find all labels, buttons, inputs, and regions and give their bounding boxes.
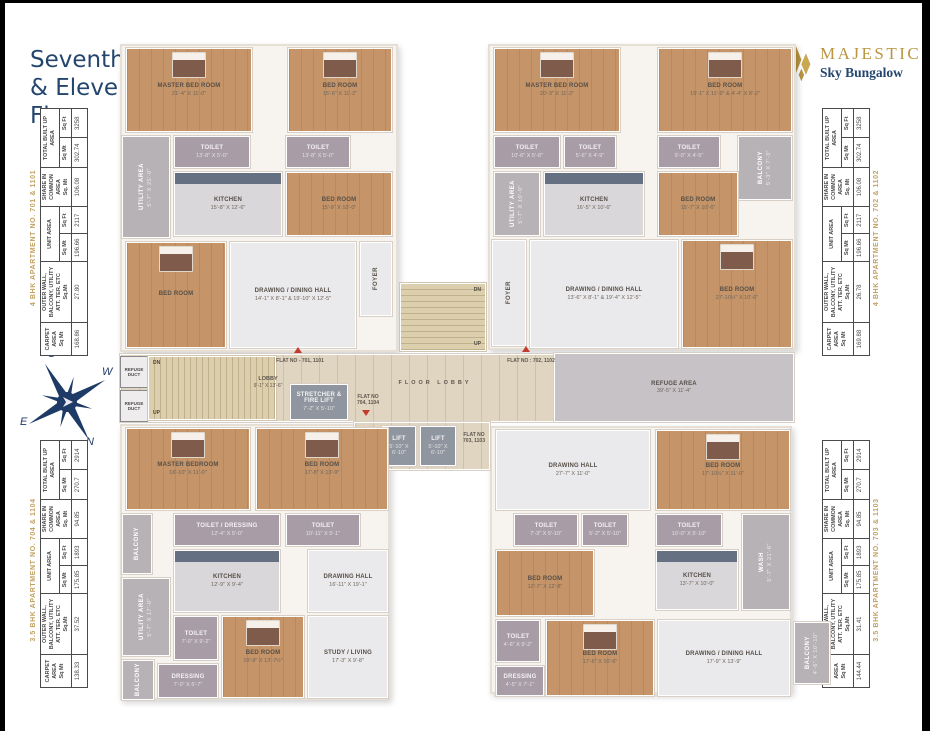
room-balcony: BALCONY [122,660,154,700]
sqft-subheader: Sq Ft [60,109,71,139]
room-bedroom: BED ROOM [126,242,226,348]
room-toilet: TOILET13'-8" X 5'-0" [174,136,250,168]
flat-704-label: FLAT NO 704, 1104 [346,394,390,407]
room-utility-area: UTILITY AREA5'-7" X 25'-0" [122,136,170,238]
sqmt-subheader: Sq Mt [60,138,71,168]
left-border-bar [0,0,5,731]
apartment-704-label: 3.5 BHK APARTMENT NO. 704 & 1104 [30,452,37,688]
room-bedroom: BED ROOM15'-7" X 10'-6" [658,172,738,236]
logo-subtitle: Sky Bungalow [820,65,921,81]
unit-sqft-value: 1893 [71,539,87,567]
room-master-bedroom: MASTER BED ROOM21'-4" X 11'-0" [126,48,252,132]
share-value: 106.08 [853,168,869,207]
share-value: 106.08 [71,168,87,207]
stairs-up-label: UP [474,341,481,347]
room-toilet: TOILET10'-6" X 5'-8" [494,136,560,168]
room-master-bedroom: MASTER BEDROOM16'-10" X 11'-0" [126,428,250,510]
unit-sqmt-value: 175.85 [853,566,869,594]
share-common-header: SHARE IN COMMON AREA Sq. Mt [823,168,854,207]
room-kitchen: KITCHEN15'-8" X 12'-6" [174,172,282,236]
floor-lobby-label: FLOOR LOBBY [380,380,490,387]
room-foyer: FOYER [360,242,392,316]
right-border-bar [922,0,930,731]
logo-name: MAJESTIC [820,44,921,64]
total-sqft-value: 2914 [853,441,869,471]
total-sqmt-value: 270.7 [71,470,87,500]
staircase-central: DN UP [400,283,486,351]
room-dressing: DRESSING7'-0" X 6'-7" [158,664,218,698]
room-bedroom: BED ROOM15'-6" X 11'-2" [288,48,392,132]
room-foyer: FOYER [492,240,526,346]
unit-area-header: UNIT AREA [41,539,60,594]
share-common-header: SHARE IN COMMON AREA Sq. Mt [41,168,72,207]
room-bedroom: BED ROOM15'-9" X 10'-0" [286,172,392,236]
stairs-up-label: UP [153,410,160,416]
total-sqmt-value: 270.7 [853,470,869,500]
bed-icon [708,52,742,78]
unit-area-header: UNIT AREA [41,207,60,262]
outer-wall-header: OUTER WALL, BALCONY, UTILITY ATT. TER. E… [823,262,854,323]
room-toilet: TOILET13'-8" X 5'-0" [286,136,350,168]
carpet-value: 168.86 [71,323,87,356]
lobby-label: LOBBY 9'-1" X 13'-6" [242,376,294,390]
outer-wall-header: OUTER WALL, BALCONY, UTILITY ATT. TER. E… [41,262,72,323]
room-drawing-dining-hall: DRAWING / DINING HALL17'-9" X 13'-9" [658,620,790,696]
carpet-header: CARPET AREA Sq Mt [41,655,72,688]
bed-icon [159,246,193,272]
area-table: CARPET AREA Sq Mt OUTER WALL, BALCONY, U… [40,440,88,688]
outer-value: 31.41 [853,594,869,655]
floor-plan-page: Seventh & Eleventh Floor MAJESTIC Sky Bu… [0,0,930,731]
unit-area-header: UNIT AREA [823,539,842,594]
room-balcony: BALCONY5'-3" X 7'-3" [738,136,792,200]
share-value: 94.85 [853,500,869,539]
room-toilet: TOILET7'-0" X 9'-2" [174,616,218,660]
room-utility-area: UTILITY AREA5'-7" X 10'-9" [494,172,540,236]
stairs-dn-label: DN [474,287,481,293]
room-kitchen: KITCHEN13'-7" X 10'-0" [656,550,738,610]
unit-sqmt-value: 196.66 [71,234,87,262]
room-bedroom: BED ROOM17'-8" X 13'-9" [256,428,388,510]
total-builtup-header: TOTAL BUILT UP AREA [41,441,60,500]
sqft-subheader: Sq Ft [842,539,853,567]
total-sqft-value: 3258 [71,109,87,139]
bed-icon [246,620,280,646]
area-table: CARPET AREA Sq Mt OUTER WALL, BALCONY, U… [822,108,870,356]
sqft-subheader: Sq Ft [60,441,71,471]
sqmt-subheader: Sq Mt [842,566,853,594]
room-kitchen: KITCHEN16'-5" X 10'-6" [544,172,644,236]
floor-plan: MASTER BED ROOM21'-4" X 11'-0" BED ROOM1… [118,42,818,706]
area-table-702: CARPET AREA Sq Mt OUTER WALL, BALCONY, U… [822,120,880,356]
room-drawing-dining-hall: DRAWING / DINING HALL14'-1" X 8'-1" & 19… [230,242,356,348]
flat-702-label: FLAT NO : 702, 1102 [496,358,566,364]
room-bedroom: BED ROOM17'-6" X 10'-6" [546,620,654,696]
sqmt-subheader: Sq Mt [60,470,71,500]
area-table-701: 4 BHK APARTMENT NO. 701 & 1101 CARPET AR… [30,120,88,356]
sqmt-subheader: Sq Mt [60,234,71,262]
room-utility-area: UTILITY AREA5'-7" X 17'-0" [122,578,170,656]
carpet-header: CARPET AREA Sq Mt [41,323,72,356]
bed-icon [305,432,339,458]
logo-text: MAJESTIC Sky Bungalow [820,44,921,81]
total-sqmt-value: 302.74 [853,138,869,168]
room-toilet-dressing: TOILET / DRESSING12'-4" X 5'-0" [174,514,280,546]
room-wash: WASH5'-7" X 21'-6" [742,514,790,610]
room-toilet: TOILET10'-11" X 5'-1" [286,514,360,546]
bed-icon [540,52,574,78]
bed-icon [171,432,205,458]
apartment-703-label: 3.5 BHK APARTMENT NO. 703 & 1103 [873,452,880,688]
bed-icon [172,52,206,78]
room-toilet: TOILET10'-0" X 5'-10" [656,514,722,546]
entrance-marker-702 [522,346,530,352]
carpet-value: 144.44 [853,655,869,688]
sqft-subheader: Sq Ft [60,539,71,567]
top-border-bar [0,0,930,3]
room-drawing-dining-hall: DRAWING / DINING HALL13'-6" X 8'-1" & 19… [530,240,678,348]
room-bedroom: BED ROOM15'-1" X 11'-9" & 4'-4" X 8'-2" [658,48,792,132]
carpet-value: 138.33 [71,655,87,688]
sqft-subheader: Sq Ft [842,207,853,235]
room-bedroom: BED ROOM17'-10½" X 11'-0" [656,430,790,510]
apartment-701-label: 4 BHK APARTMENT NO. 701 & 1101 [30,120,37,356]
refuge-area: REFUGE AREA39'-5" X 11'-4" [554,353,794,422]
carpet-value: 169.88 [853,323,869,356]
unit-area-header: UNIT AREA [823,207,842,262]
room-toilet: TOILET5'-6" X 4'-9" [564,136,616,168]
bed-icon [323,52,357,78]
total-sqft-value: 2914 [71,441,87,471]
area-table-704: 3.5 BHK APARTMENT NO. 704 & 1104 CARPET … [30,452,88,688]
total-builtup-header: TOTAL BUILT UP AREA [41,109,60,168]
unit-sqmt-value: 175.85 [71,566,87,594]
area-table: CARPET AREA Sq Mt OUTER WALL, BALCONY, U… [40,108,88,356]
apartment-702-label: 4 BHK APARTMENT NO. 702 & 1102 [873,120,880,356]
room-drawing-hall: DRAWING HALL16'-11" X 19'-1" [308,550,388,612]
refuge-duct: REFUGE DUCT [120,390,148,422]
sqmt-subheader: Sq Mt [842,138,853,168]
outer-value: 26.78 [853,262,869,323]
room-drawing-hall: DRAWING HALL27'-7" X 11'-0" [496,430,650,510]
unit-sqmt-value: 196.66 [853,234,869,262]
room-toilet: TOILET4'-6" X 9'-2" [496,620,540,662]
sqft-subheader: Sq Ft [842,109,853,139]
sqft-subheader: Sq Ft [842,441,853,471]
room-bedroom: BED ROOM10'-9" X 13'-7½" [222,616,304,698]
sqmt-subheader: Sq Mt [842,234,853,262]
room-toilet: TOILET5'-2" X 5'-10" [582,514,628,546]
total-builtup-header: TOTAL BUILT UP AREA [823,441,842,500]
compass-rose: S W N E [18,350,116,452]
entrance-marker-704 [362,410,370,416]
refuge-duct: REFUGE DUCT [120,356,148,388]
sqmt-subheader: Sq Mt [842,470,853,500]
room-master-bedroom: MASTER BED ROOM20'-3" X 11'-2" [494,48,620,132]
stretcher-fire-lift: STRETCHER & FIRE LIFT7'-2" X 5'-10" [290,384,348,420]
unit-sqft-value: 2117 [71,207,87,235]
room-toilet: TOILET7'-3" X 5'-10" [514,514,578,546]
outer-wall-header: OUTER WALL, BALCONY, UTILITY ATT. TER. E… [41,594,72,655]
room-balcony: BALCONY4'-6" X 10'-10" [794,622,830,684]
lift-2: LIFT5'-10" X 6'-10" [420,426,456,466]
outer-value: 27.80 [71,262,87,323]
bed-icon [720,244,754,270]
total-sqmt-value: 302.74 [71,138,87,168]
compass-east-label: E [20,416,27,428]
room-toilet: TOILET9'-0" X 4'-5" [658,136,720,168]
compass-west-label: W [102,366,112,378]
sqmt-subheader: Sq Mt [60,566,71,594]
total-builtup-header: TOTAL BUILT UP AREA [823,109,842,168]
share-value: 94.85 [71,500,87,539]
room-dressing: DRESSING4'-5" X 7'-1" [496,666,544,696]
flat-701-label: FLAT NO - 701, 1101 [258,358,342,364]
stairs-dn-label: DN [153,360,160,366]
unit-sqft-value: 1893 [853,539,869,567]
share-common-header: SHARE IN COMMON AREA Sq. Mt [41,500,72,539]
entrance-marker-701 [294,347,302,353]
outer-value: 37.52 [71,594,87,655]
bed-icon [706,434,740,460]
sqft-subheader: Sq Ft [60,207,71,235]
room-bedroom: BED ROOM12'-7" X 12'-8" [496,550,594,616]
flat-703-label: FLAT NO 703, 1103 [454,432,494,445]
room-balcony: BALCONY [122,514,152,574]
share-common-header: SHARE IN COMMON AREA Sq. Mt [823,500,854,539]
room-kitchen: KITCHEN12'-9" X 9'-4" [174,550,280,612]
area-table-703: CARPET AREA Sq Mt OUTER WALL, BALCONY, U… [822,452,880,688]
room-study-living: STUDY / LIVING17'-3" X 9'-8" [308,616,388,698]
bed-icon [583,624,617,650]
unit-sqft-value: 2117 [853,207,869,235]
carpet-header: CARPET AREA Sq Mt [823,323,854,356]
room-bedroom: BED ROOM27'-10½" X 10'-6" [682,240,792,348]
total-sqft-value: 3258 [853,109,869,139]
